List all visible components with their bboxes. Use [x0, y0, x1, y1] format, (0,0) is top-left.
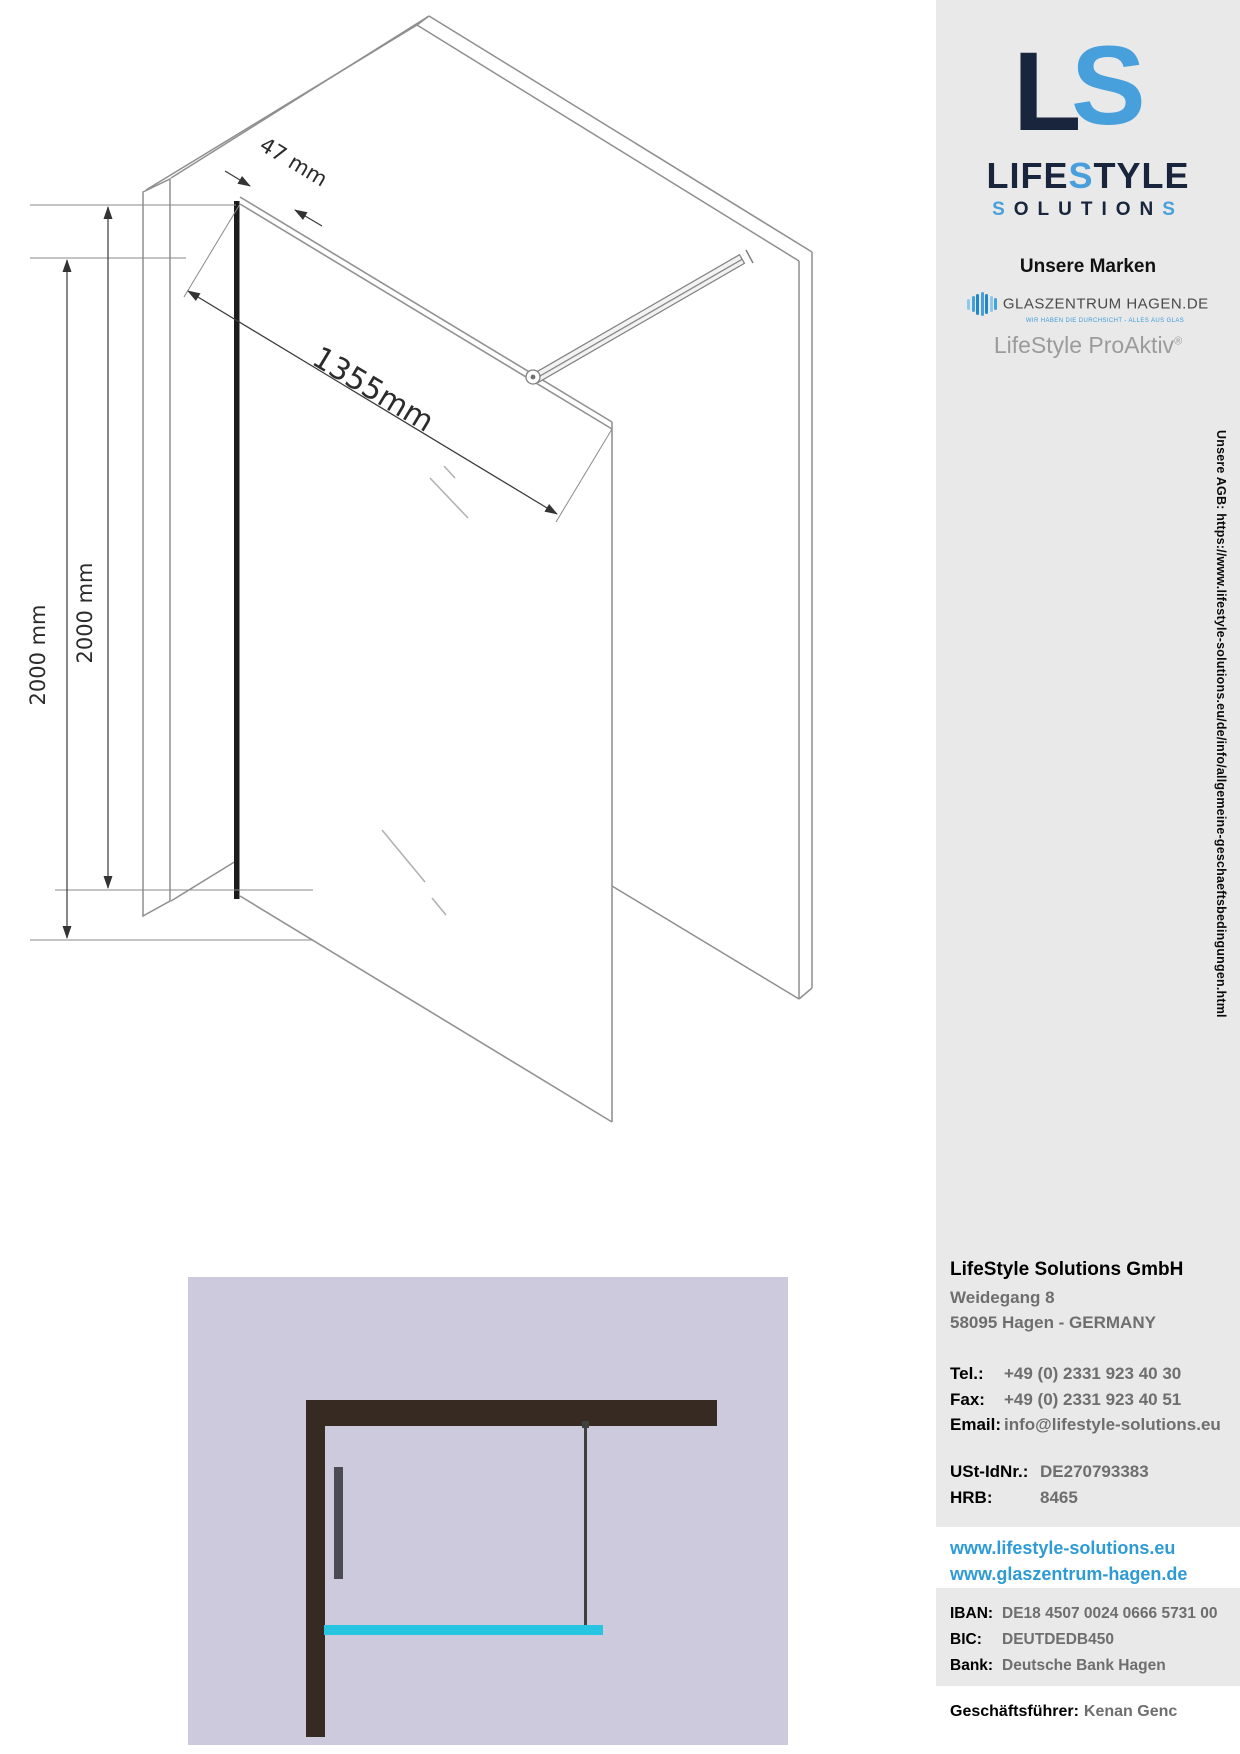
email-label: Email: — [950, 1415, 1004, 1435]
email-value[interactable]: info@lifestyle-solutions.eu — [1004, 1415, 1221, 1434]
logo-word-part: OLUTION — [1014, 199, 1163, 220]
dim-thickness-arrow-right — [295, 210, 322, 226]
glaszentrum-bars-icon — [967, 292, 999, 316]
iso-back-wall — [417, 16, 812, 999]
plan-wall-vertical — [306, 1400, 325, 1737]
bic-row: BIC:DEUTDEDB450 — [950, 1630, 1236, 1650]
logo-word-part-blue: S — [1068, 155, 1093, 196]
hrb-row: HRB:8465 — [950, 1488, 1236, 1508]
sidebar: S L LIFESTYLE SOLUTIONS Unsere Marken GL… — [936, 0, 1240, 1754]
logo-mark-s: S — [1071, 30, 1146, 142]
tel-value: +49 (0) 2331 923 40 30 — [1004, 1364, 1181, 1383]
bic-label: BIC: — [950, 1630, 1002, 1650]
company-street: Weidegang 8 — [950, 1288, 1236, 1308]
dimension-lines — [67, 171, 557, 938]
glaszentrum-name: GLASZENTRUM HAGEN.DE — [1003, 296, 1209, 313]
glass-reflection-marks — [382, 466, 468, 915]
bank-value: Deutsche Bank Hagen — [1002, 1657, 1166, 1674]
dim-thickness-label: 47 mm — [256, 133, 332, 192]
hrb-value: 8465 — [1040, 1488, 1078, 1507]
tel-row: Tel.:+49 (0) 2331 923 40 30 — [950, 1364, 1236, 1384]
dimension-extension-lines — [30, 204, 612, 940]
ust-row: USt-IdNr.:DE270793383 — [950, 1462, 1236, 1482]
company-name: LifeStyle Solutions GmbH — [950, 1260, 1236, 1280]
dim-width-label: 1355mm — [306, 340, 440, 439]
ceo-label: Geschäftsführer: — [950, 1702, 1079, 1722]
ceo-value: Kenan Genc — [1084, 1703, 1177, 1720]
ust-value: DE270793383 — [1040, 1462, 1149, 1481]
fax-row: Fax:+49 (0) 2331 923 40 51 — [950, 1390, 1236, 1410]
logo-word-lifestyle: LIFESTYLE — [936, 158, 1240, 194]
dim-height-inner-label: 2000 mm — [73, 562, 97, 663]
email-row: Email:info@lifestyle-solutions.eu — [950, 1415, 1236, 1435]
plan-wall-profile — [334, 1467, 343, 1579]
logo-word-part-blue: S — [1162, 199, 1184, 220]
logo-word-solutions: SOLUTIONS — [936, 200, 1240, 219]
isometric-drawing: 2000 mm 2000 mm 1355mm 47 mm — [0, 0, 840, 1145]
website-link-lifestyle[interactable]: www.lifestyle-solutions.eu — [950, 1538, 1175, 1559]
fax-label: Fax: — [950, 1390, 1004, 1410]
iban-value: DE18 4507 0024 0666 5731 00 — [1002, 1605, 1217, 1622]
bank-label: Bank: — [950, 1656, 1002, 1676]
agb-link-vertical[interactable]: Unsere AGB: https://www.lifestyle-soluti… — [1214, 430, 1228, 1140]
plan-support-bar-line — [584, 1426, 587, 1629]
logo-word-part: TYLE — [1094, 155, 1190, 196]
iban-row: IBAN:DE18 4507 0024 0666 5731 00 — [950, 1604, 1236, 1624]
brands-title: Unsere Marken — [936, 256, 1240, 278]
plan-view — [188, 1277, 788, 1745]
ceo-row: Geschäftsführer:Kenan Genc — [950, 1702, 1236, 1722]
tel-label: Tel.: — [950, 1364, 1004, 1384]
brand-glaszentrum: GLASZENTRUM HAGEN.DE — [936, 292, 1240, 318]
website-link-glaszentrum[interactable]: www.glaszentrum-hagen.de — [950, 1564, 1187, 1585]
dim-thickness-arrow-left — [225, 171, 250, 186]
iso-wall-profile — [234, 201, 240, 899]
logo-word-part: LIFE — [986, 155, 1068, 196]
bic-value: DEUTDEDB450 — [1002, 1631, 1114, 1648]
iban-label: IBAN: — [950, 1604, 1002, 1624]
iso-glass-panel — [240, 197, 612, 1122]
ust-label: USt-IdNr.: — [950, 1462, 1040, 1482]
proaktiv-name: LifeStyle ProAktiv — [994, 332, 1174, 358]
datasheet-page: 2000 mm 2000 mm 1355mm 47 mm S L LIFESTY… — [0, 0, 1240, 1754]
fax-value: +49 (0) 2331 923 40 51 — [1004, 1390, 1181, 1409]
iso-support-bar — [526, 250, 753, 384]
logo-word-part-blue: S — [992, 199, 1014, 220]
hrb-label: HRB: — [950, 1488, 1040, 1508]
plan-wall-horizontal — [306, 1400, 717, 1426]
bank-row: Bank:Deutsche Bank Hagen — [950, 1656, 1236, 1676]
glaszentrum-tagline: WIR HABEN DIE DURCHSICHT - ALLES AUS GLA… — [936, 318, 1240, 324]
company-city: 58095 Hagen - GERMANY — [950, 1313, 1236, 1333]
logo-mark-l: L — [1013, 36, 1081, 148]
registered-mark: ® — [1174, 335, 1182, 347]
company-logo: S L — [1013, 30, 1173, 156]
plan-glass-panel-line — [324, 1625, 603, 1635]
dim-height-outer-label: 2000 mm — [26, 604, 50, 705]
brand-proaktiv: LifeStyle ProAktiv® — [936, 332, 1240, 359]
